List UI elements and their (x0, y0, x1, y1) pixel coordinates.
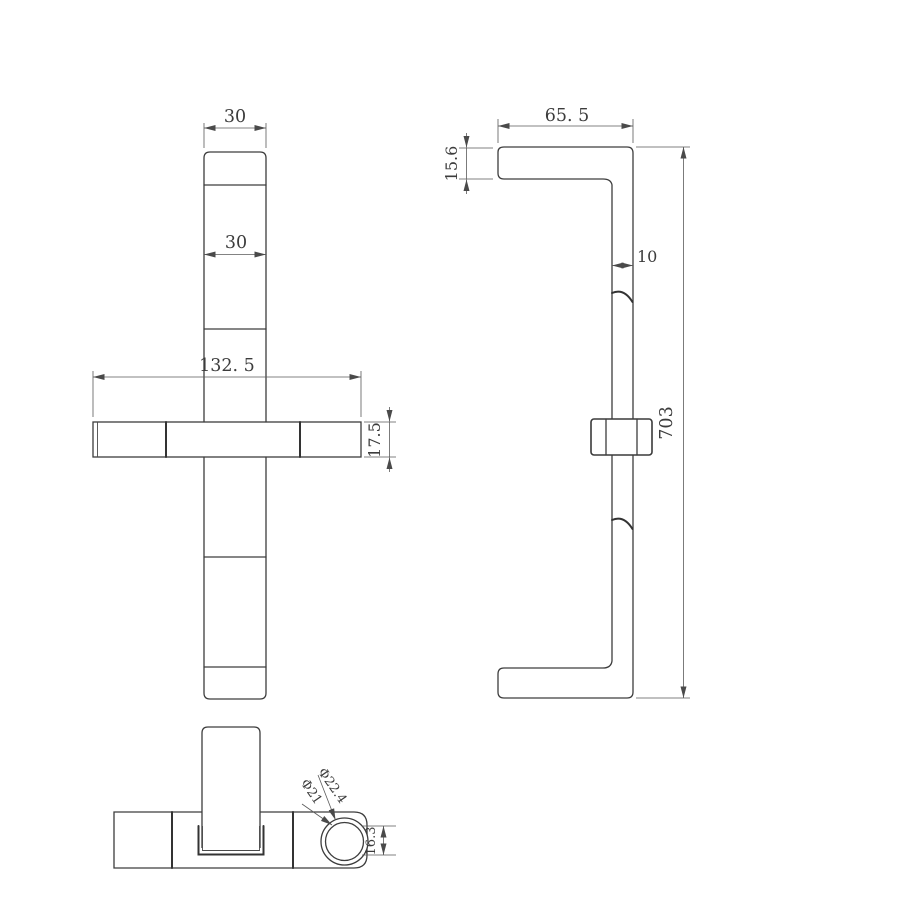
dim-bracket-height: 15.6 (442, 133, 493, 194)
dim-label-bracket-length: 65. 5 (545, 106, 590, 126)
side-bar-joint-curve-lower (612, 519, 633, 529)
dim-bracket-length: 65. 5 (498, 106, 633, 143)
side-bar-joint-curve-upper (612, 292, 633, 302)
dim-label-rail-length: 132. 5 (199, 356, 255, 376)
dim-label-cradle-height: 16.3 (364, 827, 379, 856)
technical-drawing-canvas: 30 30 132. 5 17.5 (0, 0, 900, 900)
dim-bar-width: 30 (204, 233, 266, 255)
bottom-view: Φ22.4 Φ21 16.3 (114, 727, 396, 868)
dim-rail-height: 17.5 (364, 407, 396, 472)
holder-inner-circle (326, 823, 364, 861)
dim-rail-length: 132. 5 (93, 356, 361, 417)
plan-bar (202, 727, 260, 848)
dim-label-bracket-height: 15.6 (442, 146, 461, 182)
front-bar-lower (204, 457, 266, 699)
dim-bar-depth: 10 (612, 247, 657, 266)
front-view: 30 30 132. 5 17.5 (93, 107, 396, 699)
dim-label-total-height: 703 (657, 406, 677, 439)
side-view: 65. 5 15.6 10 703 (442, 106, 690, 698)
dim-label-bar-depth: 10 (637, 247, 657, 266)
dim-label-top-width: 30 (224, 107, 246, 127)
dim-label-bar-width: 30 (225, 233, 247, 253)
side-slider-block (591, 419, 652, 455)
front-bar-upper (204, 152, 266, 422)
front-rail (93, 422, 361, 457)
dim-label-rail-height: 17.5 (365, 422, 384, 458)
dim-top-width: 30 (204, 107, 266, 148)
dim-cradle-height: 16.3 (362, 826, 396, 855)
